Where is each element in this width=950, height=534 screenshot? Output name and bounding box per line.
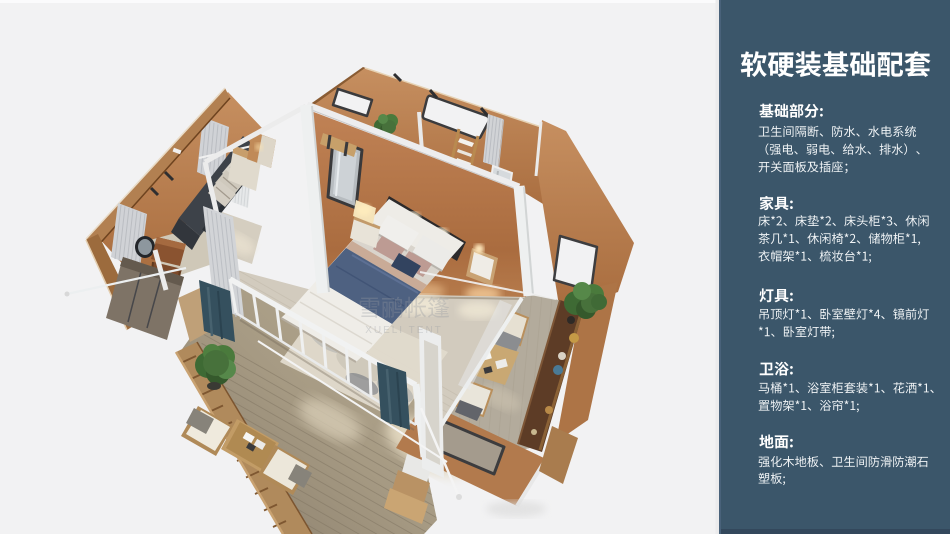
svg-text:XUELI TENT: XUELI TENT — [365, 325, 443, 336]
